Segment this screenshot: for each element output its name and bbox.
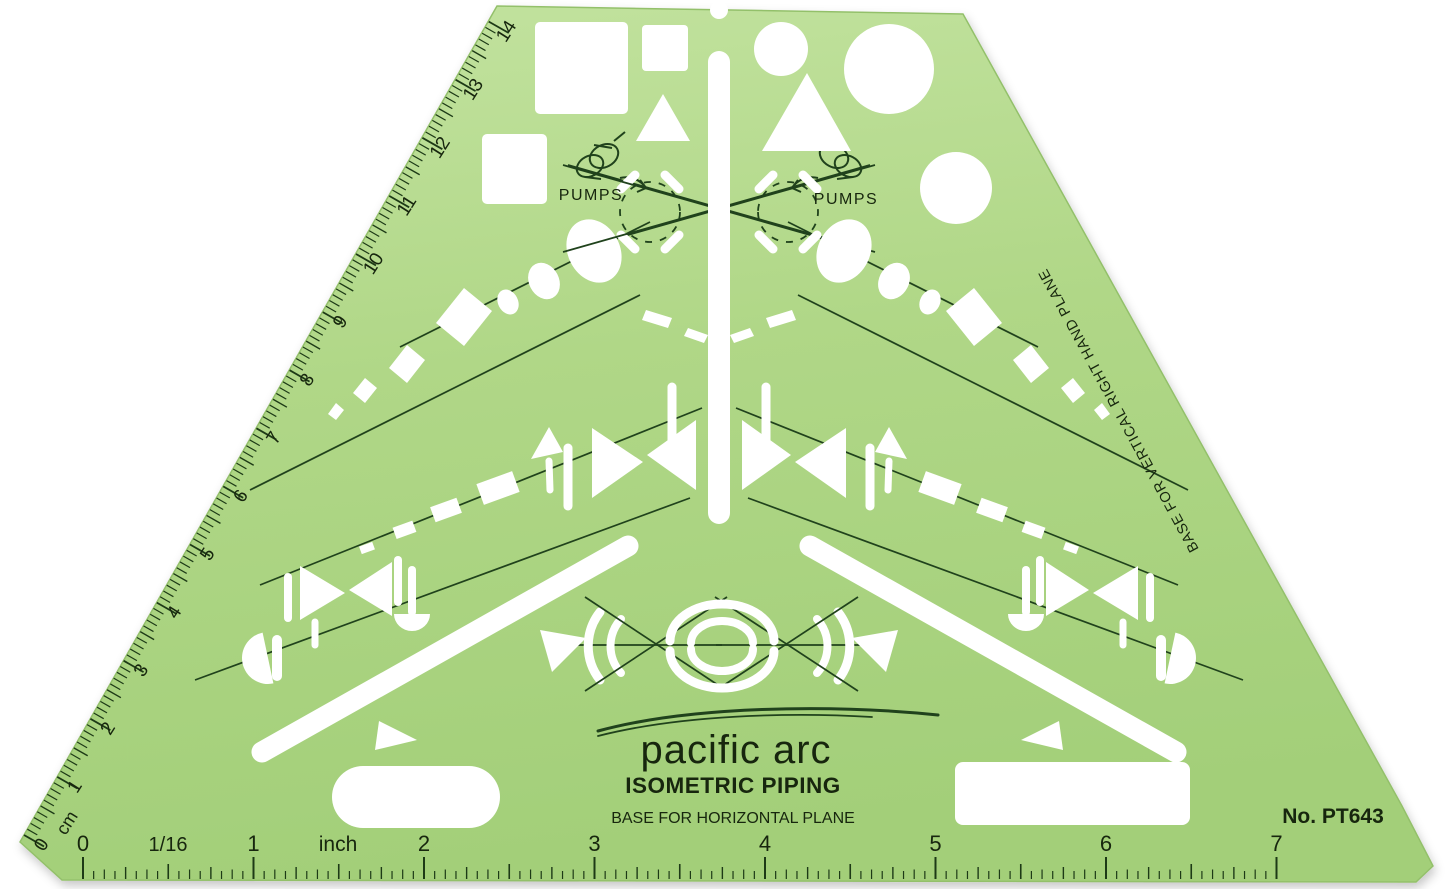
pumps-label-right: PUMPS xyxy=(814,191,878,208)
brand-name: pacific arc xyxy=(640,728,831,772)
pill-slot-cutout xyxy=(332,766,500,828)
svg-text:6: 6 xyxy=(1100,831,1112,856)
horizontal-plane-label: BASE FOR HORIZONTAL PLANE xyxy=(611,810,855,827)
svg-text:0: 0 xyxy=(77,831,89,856)
product-title: ISOMETRIC PIPING xyxy=(625,773,841,798)
svg-text:1: 1 xyxy=(247,831,259,856)
product-photo-stage: pacific arc ISOMETRIC PIPING BASE FOR HO… xyxy=(0,0,1445,889)
pumps-label-left: PUMPS xyxy=(559,187,623,204)
circle-medium-cutout xyxy=(920,152,992,224)
svg-text:4: 4 xyxy=(759,831,771,856)
model-number: No. PT643 xyxy=(1282,805,1384,828)
svg-text:2: 2 xyxy=(418,831,430,856)
svg-text:7: 7 xyxy=(1270,831,1282,856)
svg-text:5: 5 xyxy=(929,831,941,856)
square-large-cutout xyxy=(535,22,628,114)
circle-small-cutout xyxy=(754,22,808,76)
rectangle-cutout xyxy=(955,762,1190,825)
svg-text:3: 3 xyxy=(588,831,600,856)
inch-unit-label: inch xyxy=(319,833,358,856)
square-small-cutout xyxy=(642,25,688,71)
inch-sixteenth-label: 1/16 xyxy=(149,834,188,856)
isometric-piping-template: pacific arc ISOMETRIC PIPING BASE FOR HO… xyxy=(0,0,1445,889)
square-medium-cutout xyxy=(482,134,547,204)
circle-large-cutout xyxy=(844,24,934,114)
top-notch xyxy=(710,1,728,19)
